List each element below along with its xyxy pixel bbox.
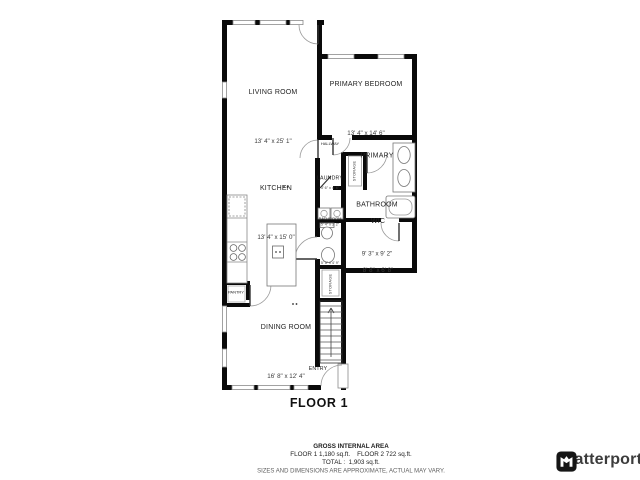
wall-left-outer [222, 20, 227, 390]
room-name: BATHROOM [319, 216, 342, 221]
refrigerator [229, 197, 245, 216]
window-left-1 [222, 82, 226, 98]
wall-bath-bottom-right [399, 218, 417, 222]
door-arc-living-top [299, 25, 318, 44]
footer-gross-internal-area: GROSS INTERNAL AREA [313, 443, 389, 451]
room-name: DINING ROOM [261, 324, 311, 333]
window-top-3 [290, 20, 303, 24]
room-name: WIC [363, 218, 394, 227]
room-label-kitchen: KITCHEN 13' 4" x 15' 0" [257, 145, 294, 282]
room-name: KITCHEN [257, 185, 294, 194]
room-name: ENTRY [309, 366, 328, 373]
matterport-logo-icon [556, 451, 577, 472]
footer-total-area: TOTAL : 1,903 sq.ft. [322, 459, 380, 467]
room-name: PRIMARY BEDROOM [330, 81, 403, 90]
door-arc-living-hall [300, 140, 318, 158]
footer-floor-areas: FLOOR 1 1,180 sq.ft. FLOOR 2 722 sq.ft. [290, 451, 411, 459]
window-top-2 [260, 20, 286, 24]
floor-plan-page: LIVING ROOM 13' 4" x 25' 1" PRIMARY BEDR… [0, 0, 640, 480]
room-name: PANTRY [227, 290, 245, 295]
room-dims: 16' 8" x 12' 4" [261, 373, 311, 381]
room-name: LIVING ROOM [249, 89, 298, 98]
room-dims: 13' 4" x 15' 0" [257, 234, 294, 242]
room-name-line1: PRIMARY [356, 152, 398, 161]
window-left-2 [222, 306, 226, 332]
room-dims: 5' 5" x 4' 9" [319, 261, 342, 266]
matterport-logo: Matterport [556, 451, 640, 469]
window-left-3 [222, 349, 226, 367]
door-leaf-entry [338, 364, 348, 388]
door-arc-bathroom2 [295, 237, 317, 259]
window-top-1 [233, 20, 255, 24]
footer-disclaimer: SIZES AND DIMENSIONS ARE APPROXIMATE, AC… [257, 468, 445, 476]
floor-title: FLOOR 1 [290, 396, 348, 412]
room-label-pantry: PANTRY [227, 250, 245, 335]
room-name: STORAGE [329, 274, 334, 295]
window-bottom-1 [232, 385, 254, 389]
